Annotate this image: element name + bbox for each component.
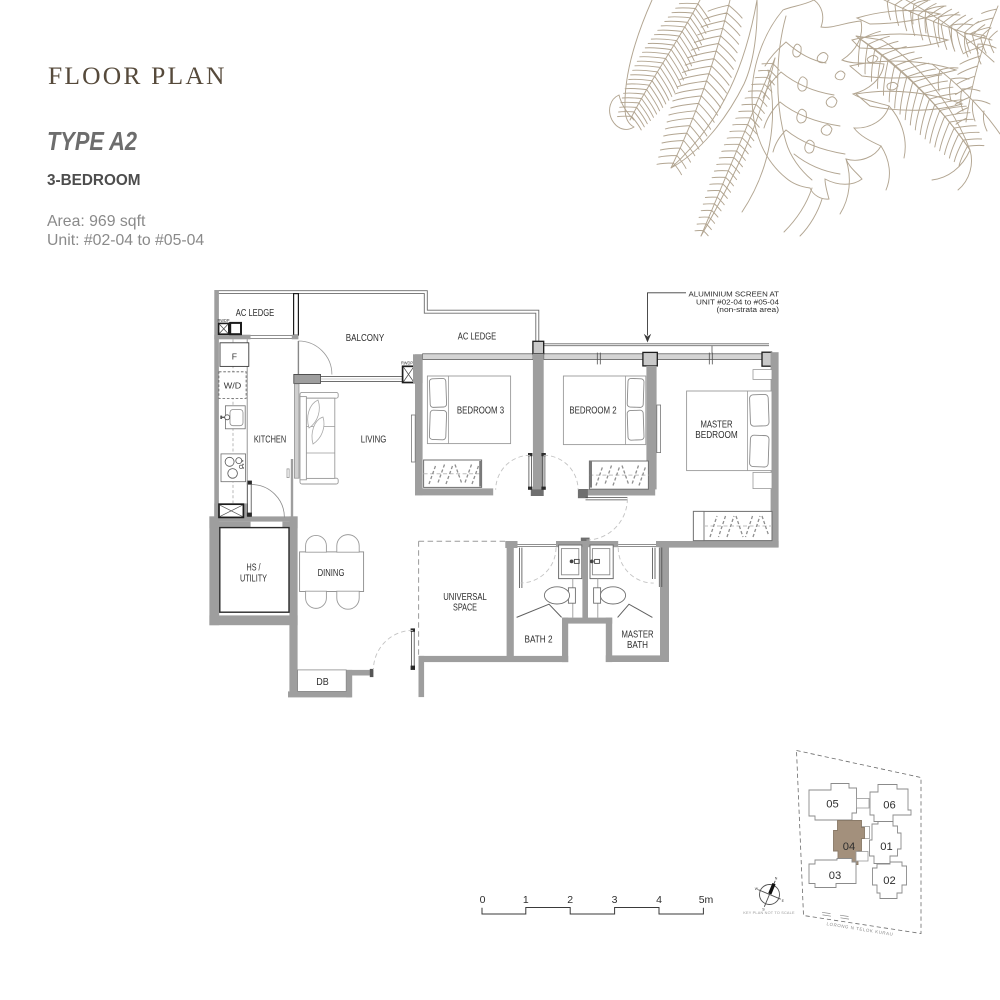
svg-text:BATH: BATH <box>627 640 648 651</box>
svg-text:N: N <box>775 877 778 881</box>
svg-text:W/D: W/D <box>224 382 242 391</box>
svg-text:BATH 2: BATH 2 <box>525 635 553 646</box>
svg-text:MASTER: MASTER <box>700 420 732 431</box>
svg-text:2: 2 <box>567 894 573 906</box>
svg-text:5m: 5m <box>699 894 714 906</box>
svg-text:4: 4 <box>656 894 662 906</box>
svg-text:04: 04 <box>843 841 855 853</box>
svg-text:HS /: HS / <box>247 563 261 574</box>
svg-text:01: 01 <box>880 841 892 853</box>
svg-text:1: 1 <box>523 894 529 906</box>
svg-text:02: 02 <box>883 875 895 887</box>
svg-text:FLOOR PLAN: FLOOR PLAN <box>48 61 227 90</box>
svg-text:Unit: #02-04 to #05-04: Unit: #02-04 to #05-04 <box>47 232 204 249</box>
svg-text:UTILITY: UTILITY <box>240 573 267 584</box>
svg-text:05: 05 <box>826 799 838 811</box>
svg-text:Area: 969 sqft: Area: 969 sqft <box>47 213 146 230</box>
svg-text:RWDP: RWDP <box>218 318 230 324</box>
svg-text:3-BEDROOM: 3-BEDROOM <box>47 172 141 189</box>
svg-text:DINING: DINING <box>318 568 345 579</box>
svg-text:MASTER: MASTER <box>621 630 653 641</box>
svg-text:AC LEDGE: AC LEDGE <box>236 308 275 319</box>
svg-text:AC LEDGE: AC LEDGE <box>458 332 497 343</box>
svg-text:BEDROOM 3: BEDROOM 3 <box>457 406 505 417</box>
svg-text:BEDROOM: BEDROOM <box>695 430 738 441</box>
svg-text:03: 03 <box>829 870 841 882</box>
svg-text:(non-strata area): (non-strata area) <box>717 305 780 314</box>
svg-text:3: 3 <box>612 894 618 906</box>
svg-text:06: 06 <box>883 800 895 812</box>
svg-text:F: F <box>232 352 237 362</box>
svg-text:BEDROOM 2: BEDROOM 2 <box>569 406 617 417</box>
svg-text:LIVING: LIVING <box>361 434 387 445</box>
svg-text:TYPE A2: TYPE A2 <box>47 126 137 156</box>
svg-text:0: 0 <box>480 894 486 906</box>
svg-text:W: W <box>755 887 759 891</box>
svg-text:KITCHEN: KITCHEN <box>254 434 286 445</box>
svg-text:BALCONY: BALCONY <box>346 333 385 344</box>
svg-text:SPACE: SPACE <box>453 603 477 614</box>
svg-text:UNIVERSAL: UNIVERSAL <box>443 592 487 603</box>
svg-text:RWDP: RWDP <box>401 361 413 367</box>
svg-text:DB: DB <box>316 677 329 688</box>
svg-text:KEY PLAN NOT TO SCALE: KEY PLAN NOT TO SCALE <box>743 911 795 915</box>
